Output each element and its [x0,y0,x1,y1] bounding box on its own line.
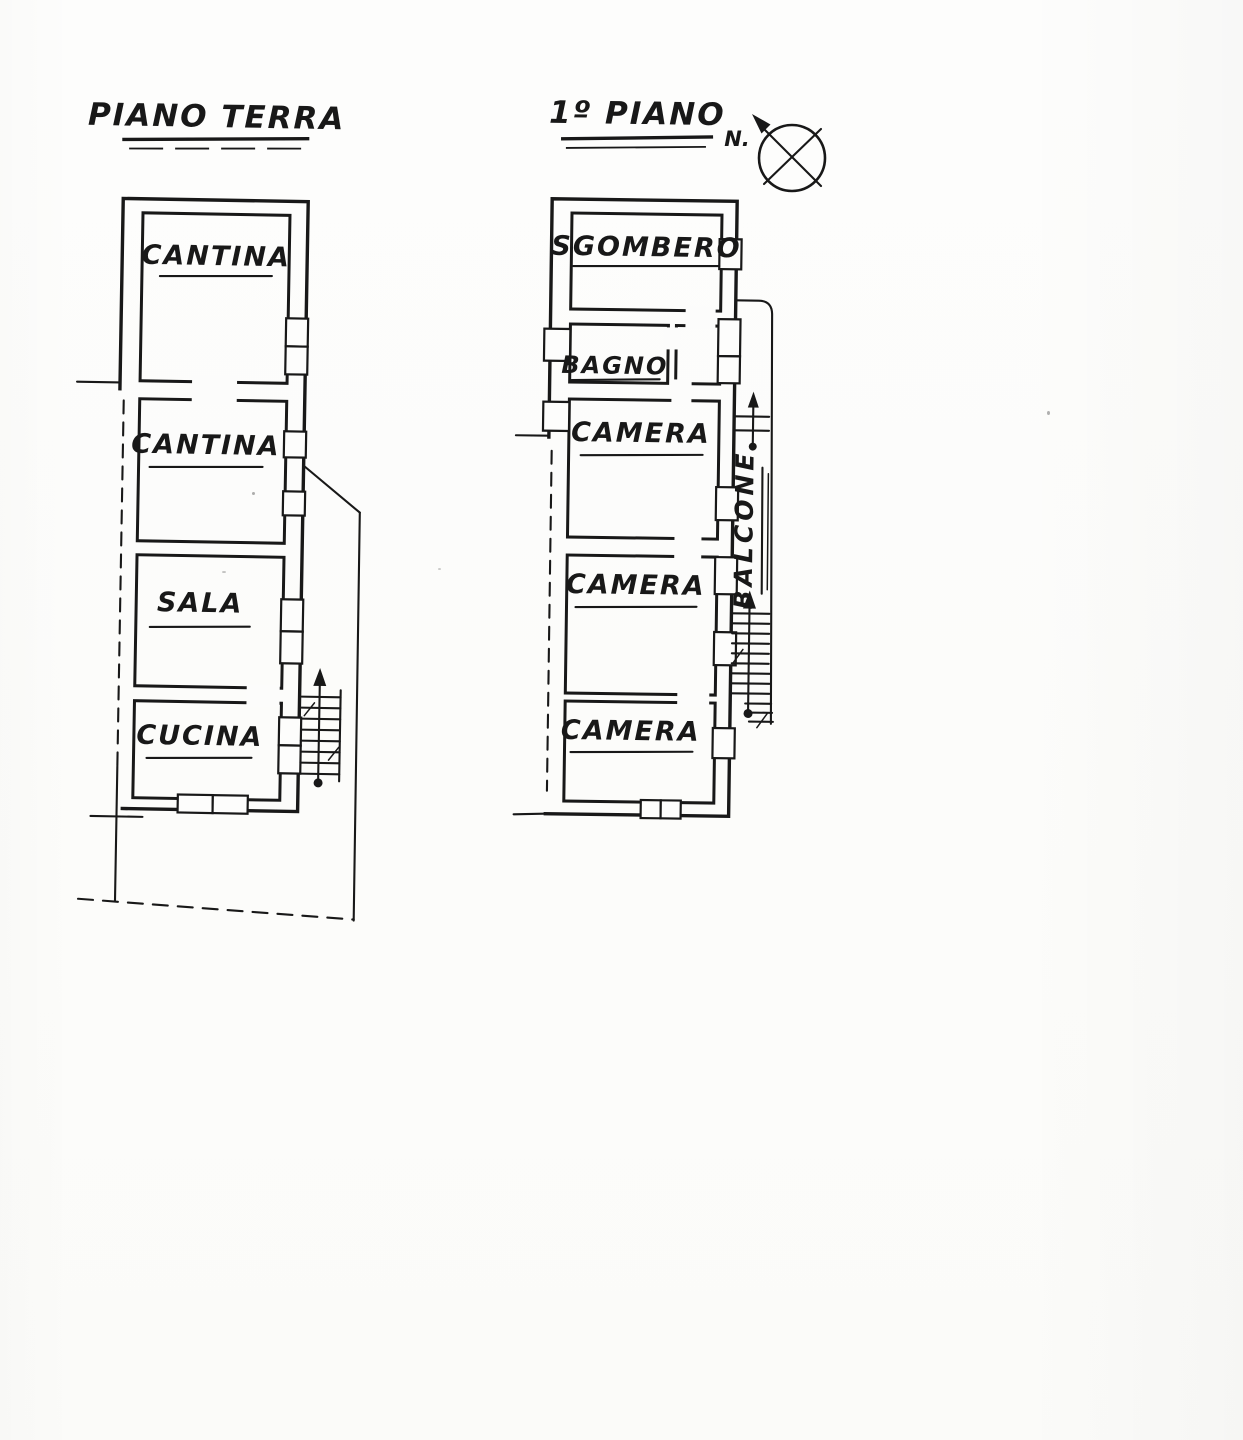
room-label-cantina-1-underline [160,274,272,278]
stair-tread [731,683,769,684]
room-label-camera-2-underline [575,605,696,609]
window-camera-1-left [543,402,569,431]
boundary-solid-right [353,513,361,921]
stair-direction-start-dot [314,778,323,787]
stair-tread [732,613,769,614]
door-gap-bagno-hall [664,327,680,349]
window-cucina-a [279,717,301,745]
door-gap-camera1-camera2 [674,534,701,560]
door-gap-cantina1-cantina2 [192,376,237,405]
boundary-dashed-left [117,400,123,766]
door-gap-camera2-camera3 [677,691,709,707]
room-cantina-1-outline [140,213,290,384]
window-bottom-a [178,794,213,813]
stair-direction-line [318,680,320,783]
stair-cut-mark [328,747,338,760]
scan-speck [222,571,226,573]
room-label-camera-2: CAMERA [566,569,706,602]
balcony-label: BALCONE [728,449,759,609]
compass-rose: N. [724,114,825,191]
window-cucina-b [278,745,300,773]
room-label-sala-underline [150,625,250,629]
room-label-cucina: CUCINA [136,720,264,753]
ground-floor-title: PIANO TERRA [88,97,346,137]
room-label-sala: SALA [157,587,244,620]
window-sala-b [280,631,303,663]
window-bottom-first-a [641,800,661,818]
first-floor-title-underline [561,135,713,141]
boundary-stub-bottom-first [514,813,544,814]
boundary-cross-tick [90,816,142,817]
stair-tread [300,774,339,775]
door-gap-hall-camera1 [671,379,691,403]
room-label-bagno: BAGNO [561,351,668,380]
stair-cut-mark [304,703,314,716]
room-label-cantina-1: CANTINA [141,240,291,274]
boundary-dashed-left-first [547,451,552,791]
scan-speck [1047,411,1050,415]
stair-tread [732,653,769,654]
room-cantina-2-outline [137,399,286,544]
room-label-cantina-2-underline [150,465,263,469]
first-floor-title: 1º PIANO [549,95,726,133]
stair-tread [301,752,340,753]
floor-plan-drawing: PIANO TERRA [0,0,1243,1440]
stair-tread [732,663,769,664]
stair-direction-arrowhead [313,668,326,686]
balcony-door-hall-a [718,319,741,356]
stair-tread [732,673,770,674]
balcony-step-start-dot [749,443,757,451]
stair-direction-start-dot [743,709,752,718]
window-cantina-1-b [285,346,307,374]
stair-direction-line [748,603,750,714]
balcony-label-underline-2 [767,474,769,590]
stair-tread [301,708,340,709]
first-floor-plan: 1º PIANO [511,94,782,820]
room-sala-outline [135,555,284,689]
north-arrow-head [752,114,771,134]
ground-floor-plan: PIANO TERRA [68,97,368,921]
boundary-diagonal-right [303,466,361,513]
room-label-sgombero: SGOMBERO [551,231,742,265]
window-bottom-b [213,795,248,814]
balcony-step-arrowhead [748,391,759,407]
stair-tread [732,643,769,644]
scan-speck [438,568,441,570]
window-camera-3 [712,728,734,758]
hallway-outline [676,325,721,384]
room-label-cantina-2: CANTINA [131,429,281,463]
balcony-step-direction-line [753,402,754,447]
stair-stringer [339,690,341,781]
room-label-camera-3-underline [570,750,692,754]
window-cantina-1-a [286,318,308,346]
room-label-camera-1-underline [581,453,703,457]
stair-tread [302,697,341,698]
stair-tread [301,741,340,742]
ground-floor-exterior-stairs [300,668,341,788]
room-label-sgombero-underline [573,264,719,268]
stair-tread [732,623,769,624]
stair-tread [731,693,769,694]
stair-tread [301,730,340,731]
stair-tread [732,633,769,634]
door-gap-sala-cucina [246,685,279,708]
window-camera-2 [714,632,736,665]
first-floor-exterior-stairs [731,590,775,728]
stair-tread [300,763,339,764]
room-label-camera-3: CAMERA [561,715,701,748]
balcony-label-underline [761,468,764,594]
first-floor-title-underline-2 [566,145,706,150]
north-label: N. [724,127,750,151]
balcony-door-hall-b [718,356,740,383]
door-cantina-2-exterior [283,491,305,515]
scan-speck [252,492,255,495]
ground-floor-title-underline-2 [129,146,304,152]
door-gap-sgombero-hall [685,307,715,329]
boundary-tick-left [77,382,120,383]
scanned-floor-plan-sheet: PIANO TERRA [0,0,1243,1440]
boundary-solid-left-lower [115,766,117,900]
window-bottom-first-b [661,800,681,818]
stair-tread [301,719,340,720]
window-cantina-2 [284,431,306,457]
boundary-dashed-bottom [78,899,354,920]
ground-floor-title-underline [122,135,309,142]
window-sala-a [281,599,304,631]
room-label-cucina-underline [146,756,251,760]
room-label-camera-1: CAMERA [571,417,711,450]
